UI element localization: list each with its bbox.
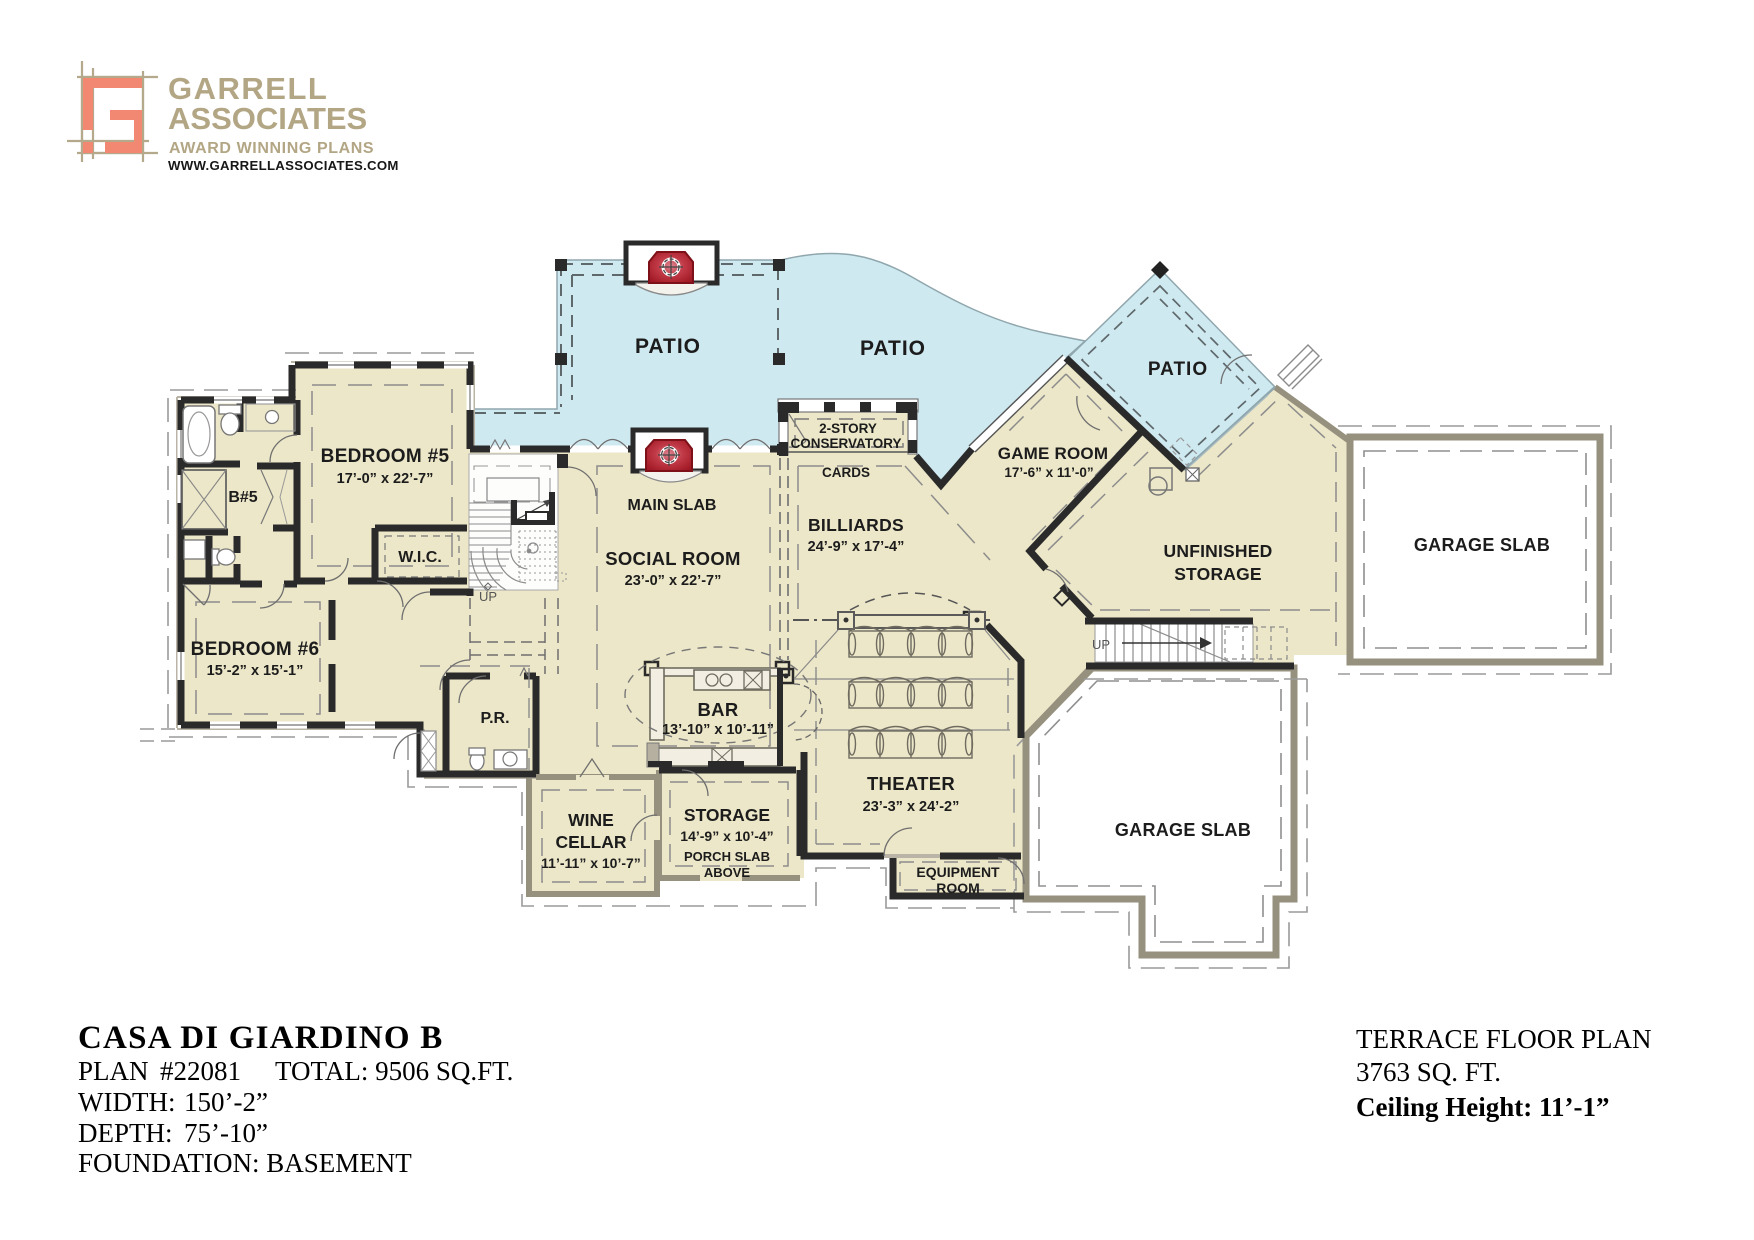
svg-text:11’-11” x 10’-7”: 11’-11” x 10’-7” <box>541 855 641 871</box>
svg-text:GARAGE SLAB: GARAGE SLAB <box>1414 535 1550 555</box>
svg-text:Ceiling Height: 11’-1”: Ceiling Height: 11’-1” <box>1356 1092 1609 1122</box>
svg-text:75’-10”: 75’-10” <box>184 1118 268 1148</box>
svg-text:UP: UP <box>479 589 497 604</box>
svg-text:TOTAL: 9506 SQ.FT.: TOTAL: 9506 SQ.FT. <box>275 1056 513 1086</box>
svg-text:150’-2”: 150’-2” <box>184 1087 268 1117</box>
svg-text:13’-10” x 10’-11”: 13’-10” x 10’-11” <box>662 722 774 738</box>
svg-text:CELLAR: CELLAR <box>556 832 627 852</box>
svg-text:ROOM: ROOM <box>936 880 980 896</box>
svg-text:3763 SQ. FT.: 3763 SQ. FT. <box>1356 1057 1501 1087</box>
svg-text:THEATER: THEATER <box>867 773 955 794</box>
svg-text:P.R.: P.R. <box>480 710 509 727</box>
svg-text:PORCH SLAB: PORCH SLAB <box>684 849 770 864</box>
svg-text:BEDROOM #6: BEDROOM #6 <box>191 639 320 660</box>
svg-text:UNFINISHED: UNFINISHED <box>1164 541 1273 561</box>
svg-text:GAME ROOM: GAME ROOM <box>998 444 1108 463</box>
svg-text:B#5: B#5 <box>228 489 257 506</box>
svg-text:PATIO: PATIO <box>860 337 926 360</box>
svg-text:ASSOCIATES: ASSOCIATES <box>168 101 367 136</box>
svg-text:DEPTH:: DEPTH: <box>78 1118 173 1148</box>
svg-text:BAR: BAR <box>698 699 739 720</box>
svg-text:24’-9” x 17’-4”: 24’-9” x 17’-4” <box>808 539 905 555</box>
svg-text:TERRACE FLOOR PLAN: TERRACE FLOOR PLAN <box>1356 1024 1652 1054</box>
svg-text:PATIO: PATIO <box>635 335 701 358</box>
svg-text:WINE: WINE <box>568 810 614 830</box>
svg-text:CONSERVATORY: CONSERVATORY <box>790 436 901 451</box>
svg-text:2-STORY: 2-STORY <box>819 421 877 436</box>
svg-text:PLAN: PLAN <box>78 1056 149 1086</box>
svg-text:23’-0” x 22’-7”: 23’-0” x 22’-7” <box>625 573 722 589</box>
svg-text:#22081: #22081 <box>160 1056 241 1086</box>
svg-text:BILLIARDS: BILLIARDS <box>808 515 904 535</box>
svg-text:FOUNDATION: BASEMENT: FOUNDATION: BASEMENT <box>78 1148 412 1178</box>
svg-text:STORAGE: STORAGE <box>1174 564 1262 584</box>
svg-text:AWARD WINNING PLANS: AWARD WINNING PLANS <box>169 140 374 157</box>
svg-text:14’-9” x 10’-4”: 14’-9” x 10’-4” <box>680 828 773 844</box>
svg-text:PATIO: PATIO <box>1148 359 1208 380</box>
svg-text:WIDTH:: WIDTH: <box>78 1087 175 1117</box>
svg-text:15’-2” x 15’-1”: 15’-2” x 15’-1” <box>207 663 304 679</box>
svg-text:MAIN SLAB: MAIN SLAB <box>628 497 717 514</box>
svg-text:GARAGE SLAB: GARAGE SLAB <box>1115 820 1251 840</box>
svg-text:17’-0” x 22’-7”: 17’-0” x 22’-7” <box>337 471 434 487</box>
svg-text:23’-3” x 24’-2”: 23’-3” x 24’-2” <box>863 799 960 815</box>
svg-text:CARDS: CARDS <box>822 465 870 480</box>
svg-text:WWW.GARRELLASSOCIATES.COM: WWW.GARRELLASSOCIATES.COM <box>168 158 399 173</box>
svg-text:ABOVE: ABOVE <box>704 865 751 880</box>
svg-text:EQUIPMENT: EQUIPMENT <box>916 864 1000 880</box>
svg-text:STORAGE: STORAGE <box>684 805 770 825</box>
svg-text:BEDROOM #5: BEDROOM #5 <box>321 446 450 467</box>
svg-text:CASA DI GIARDINO B: CASA DI GIARDINO B <box>78 1020 443 1056</box>
svg-text:17’-6” x 11’-0”: 17’-6” x 11’-0” <box>1004 465 1093 480</box>
svg-text:W.I.C.: W.I.C. <box>398 549 442 566</box>
svg-text:SOCIAL ROOM: SOCIAL ROOM <box>605 548 741 569</box>
svg-text:UP: UP <box>1092 637 1110 652</box>
